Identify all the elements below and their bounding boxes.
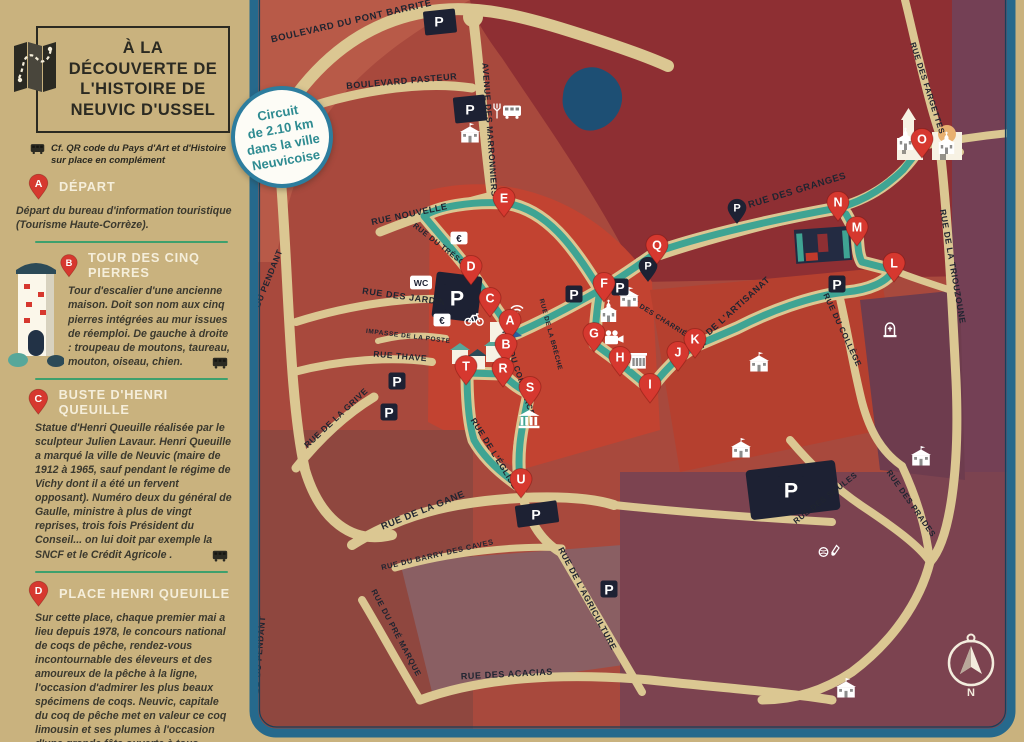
section-divider bbox=[35, 378, 228, 380]
svg-text:K: K bbox=[690, 333, 699, 347]
compass-north-label: N bbox=[967, 687, 975, 699]
svg-text:A: A bbox=[35, 178, 43, 190]
svg-text:F: F bbox=[600, 277, 608, 291]
bus-icon bbox=[212, 550, 228, 562]
parking-icon: P bbox=[444, 284, 470, 310]
svg-text:P: P bbox=[615, 279, 624, 295]
qr-note: Cf. QR code du Pays d'Art et d'Histoire … bbox=[30, 143, 240, 168]
svg-text:T: T bbox=[462, 360, 470, 374]
legend-pin-A: A bbox=[28, 173, 49, 200]
svg-text:N: N bbox=[833, 196, 842, 210]
bus-icon bbox=[212, 357, 228, 369]
svg-text:O: O bbox=[917, 133, 927, 147]
svg-text:U: U bbox=[516, 473, 525, 487]
svg-text:P: P bbox=[434, 13, 443, 29]
legend-pin-C: C bbox=[28, 388, 49, 415]
svg-text:P: P bbox=[384, 404, 393, 420]
section-body: Départ du bureau d'information touristiq… bbox=[16, 204, 232, 232]
svg-text:L: L bbox=[890, 257, 898, 271]
svg-text:C: C bbox=[485, 292, 494, 306]
svg-text:C: C bbox=[35, 393, 43, 405]
section-heading: BUSTE D'HENRI QUEUILLE bbox=[59, 387, 240, 417]
section-heading: PLACE HENRI QUEUILLE bbox=[59, 586, 230, 601]
section-divider bbox=[35, 241, 228, 243]
qr-note-text: Cf. QR code du Pays d'Art et d'Histoire … bbox=[51, 143, 240, 168]
tower-illustration bbox=[8, 256, 64, 368]
folded-map-icon bbox=[12, 40, 58, 92]
svg-text:P: P bbox=[832, 276, 841, 292]
svg-text:P: P bbox=[644, 261, 651, 273]
svg-text:P: P bbox=[450, 286, 464, 310]
legend-section-C: CBUSTE D'HENRI QUEUILLEStatue d'Henri Qu… bbox=[8, 387, 240, 562]
euro-icon bbox=[451, 232, 468, 245]
svg-text:E: E bbox=[500, 192, 508, 206]
city-map: WC € bbox=[248, 0, 1024, 742]
svg-text:G: G bbox=[589, 327, 599, 341]
legend-sidebar: À LA DÉCOUVERTE DE L'HISTOIRE DE NEUVIC … bbox=[0, 0, 252, 742]
parking-icon: P bbox=[601, 581, 618, 598]
euro-icon bbox=[434, 314, 451, 327]
svg-text:B: B bbox=[501, 338, 510, 352]
svg-text:P: P bbox=[604, 581, 613, 597]
svg-text:I: I bbox=[648, 378, 651, 392]
section-divider bbox=[35, 571, 228, 573]
parking-icon: P bbox=[462, 101, 479, 118]
svg-text:D: D bbox=[35, 585, 43, 597]
legend-pin-D: D bbox=[28, 580, 49, 607]
svg-text:R: R bbox=[498, 362, 507, 376]
svg-text:P: P bbox=[465, 101, 474, 117]
section-heading: TOUR DES CINQ PIERRES bbox=[88, 250, 240, 280]
parking-icon: P bbox=[431, 13, 448, 30]
parking-icon: P bbox=[829, 276, 846, 293]
svg-text:H: H bbox=[615, 351, 624, 365]
parking-icon: P bbox=[381, 404, 398, 421]
bus-icon bbox=[30, 143, 45, 155]
svg-text:A: A bbox=[505, 314, 514, 328]
war-memorial bbox=[794, 226, 852, 264]
section-body: Statue d'Henri Queuille réalisée par le … bbox=[35, 421, 232, 562]
section-heading: DÉPART bbox=[59, 179, 115, 194]
svg-text:P: P bbox=[392, 373, 401, 389]
section-body: Sur cette place, chaque premier mai a li… bbox=[35, 611, 232, 742]
svg-text:D: D bbox=[466, 260, 475, 274]
wc-icon bbox=[410, 276, 432, 290]
svg-text:P: P bbox=[531, 506, 540, 522]
title-box: À LA DÉCOUVERTE DE L'HISTOIRE DE NEUVIC … bbox=[36, 26, 230, 133]
svg-text:S: S bbox=[526, 381, 534, 395]
svg-text:Q: Q bbox=[652, 239, 662, 253]
svg-text:M: M bbox=[852, 221, 862, 235]
legend-section-D: DPLACE HENRI QUEUILLESur cette place, ch… bbox=[8, 580, 240, 742]
svg-text:P: P bbox=[784, 478, 798, 502]
legend-section-A: ADÉPARTDépart du bureau d'information to… bbox=[8, 173, 240, 232]
legend-section-B: BTOUR DES CINQ PIERRESTour d'escalier d'… bbox=[8, 250, 240, 368]
svg-text:P: P bbox=[733, 203, 740, 215]
parking-icon: P bbox=[778, 476, 804, 502]
parking-icon: P bbox=[389, 373, 406, 390]
svg-text:J: J bbox=[675, 346, 682, 360]
svg-text:P: P bbox=[569, 286, 578, 302]
parking-icon: P bbox=[528, 506, 545, 523]
page-title: À LA DÉCOUVERTE DE L'HISTOIRE DE NEUVIC … bbox=[64, 38, 222, 121]
parking-icon: P bbox=[566, 286, 583, 303]
svg-text:B: B bbox=[66, 258, 73, 268]
library-icon bbox=[629, 353, 647, 369]
